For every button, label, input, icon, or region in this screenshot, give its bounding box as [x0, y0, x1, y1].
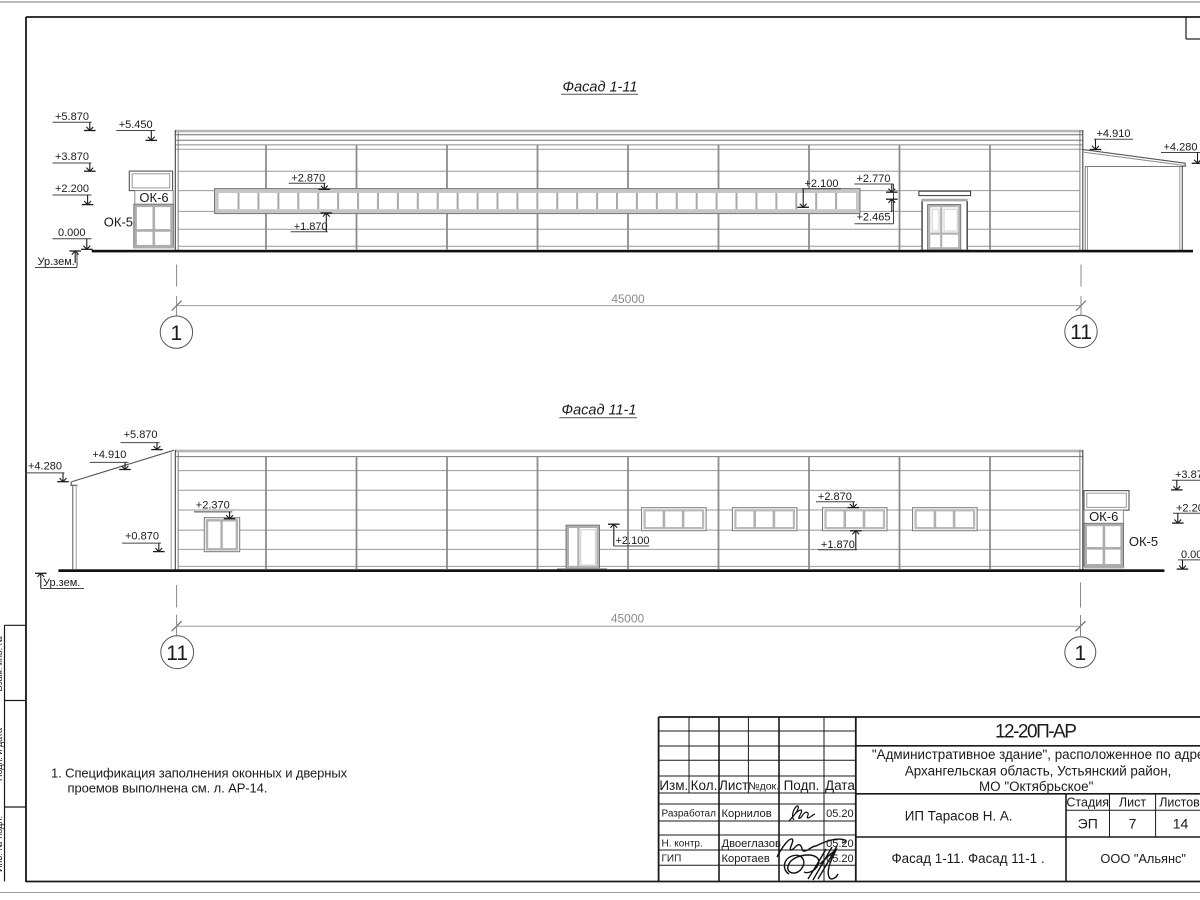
svg-text:"Административное здание", рас: "Административное здание", расположенное… [872, 747, 1200, 762]
svg-text:+3.870: +3.870 [1175, 469, 1200, 481]
svg-text:+4.280: +4.280 [28, 460, 62, 472]
svg-text:Корнилов: Корнилов [722, 808, 772, 820]
svg-text:Н. контр.: Н. контр. [662, 838, 703, 849]
svg-text:+5.450: +5.450 [119, 119, 153, 131]
svg-text:14: 14 [1173, 815, 1189, 831]
svg-text:Ур.зем.: Ур.зем. [43, 577, 80, 589]
svg-text:ОК-5: ОК-5 [104, 214, 133, 229]
svg-text:Коротаев: Коротаев [722, 853, 770, 865]
svg-text:Архангельская область, Устьянс: Архангельская область, Устьянский район, [905, 764, 1172, 779]
svg-text:0.000: 0.000 [1181, 549, 1200, 561]
svg-text:+1.870: +1.870 [294, 221, 328, 233]
svg-text:проемов выполнена см. л. АР-14: проемов выполнена см. л. АР-14. [68, 780, 268, 795]
svg-text:Взам. инв. №: Взам. инв. № [0, 635, 4, 691]
svg-text:+2.100: +2.100 [805, 178, 839, 190]
svg-text:+2.100: +2.100 [616, 535, 650, 547]
svg-text:ОК-5: ОК-5 [1129, 534, 1158, 549]
svg-text:МО "Октябрьское": МО "Октябрьское" [979, 779, 1094, 794]
svg-text:+2.465: +2.465 [857, 212, 891, 224]
svg-text:7: 7 [1129, 815, 1137, 831]
svg-text:+2.200: +2.200 [1176, 502, 1200, 514]
svg-text:+1.870: +1.870 [821, 539, 855, 551]
svg-text:Кол.: Кол. [691, 778, 718, 793]
svg-text:Фасад 11-1: Фасад 11-1 [562, 403, 637, 419]
svg-text:Изм.: Изм. [659, 778, 688, 793]
svg-text:+5.870: +5.870 [55, 111, 89, 123]
svg-text:+2.870: +2.870 [291, 172, 325, 184]
svg-text:+4.910: +4.910 [1097, 128, 1131, 140]
svg-text:+4.910: +4.910 [92, 449, 126, 461]
svg-text:Фасад 1-11. Фасад 11-1 .: Фасад 1-11. Фасад 11-1 . [891, 851, 1044, 866]
svg-text:Двоеглазов: Двоеглазов [722, 838, 782, 850]
svg-text:Подп. и дата: Подп. и дата [0, 728, 4, 781]
svg-text:11: 11 [166, 642, 188, 665]
svg-text:Лист: Лист [719, 778, 748, 793]
svg-text:+0.870: +0.870 [125, 531, 159, 543]
svg-text:05.20: 05.20 [826, 808, 854, 820]
svg-text:ООО "Альянс": ООО "Альянс" [1100, 851, 1186, 866]
svg-text:1. Спецификация заполнения око: 1. Спецификация заполнения оконных и две… [51, 765, 348, 780]
svg-text:+4.280: +4.280 [1164, 142, 1198, 154]
svg-text:45000: 45000 [611, 292, 645, 306]
svg-text:Инв. № подл.: Инв. № подл. [0, 816, 4, 872]
svg-text:Разработал: Разработал [662, 807, 717, 819]
svg-text:Ур.зем.: Ур.зем. [38, 256, 75, 268]
svg-text:+2.200: +2.200 [55, 183, 89, 195]
svg-text:0.000: 0.000 [58, 227, 86, 239]
svg-text:+2.370: +2.370 [196, 499, 230, 511]
svg-text:+5.870: +5.870 [124, 429, 158, 441]
svg-text:+2.770: +2.770 [857, 173, 891, 185]
svg-text:Дата: Дата [825, 778, 855, 793]
svg-text:ИП Тарасов Н. А.: ИП Тарасов Н. А. [905, 809, 1013, 824]
svg-text:+2.870: +2.870 [818, 491, 852, 503]
svg-text:ОК-6: ОК-6 [139, 190, 168, 205]
svg-text:Листов: Листов [1159, 795, 1200, 809]
svg-text:11: 11 [1070, 321, 1092, 344]
svg-text:ОК-6: ОК-6 [1089, 509, 1118, 524]
svg-text:1: 1 [171, 322, 183, 345]
svg-text:№док.: №док. [748, 780, 779, 792]
svg-text:Фасад 1-11: Фасад 1-11 [563, 80, 638, 96]
svg-text:+3.870: +3.870 [55, 151, 89, 163]
svg-text:1: 1 [1074, 642, 1086, 665]
svg-text:45000: 45000 [611, 612, 645, 626]
svg-text:ЭП: ЭП [1078, 815, 1098, 831]
svg-text:Стадия: Стадия [1066, 795, 1109, 809]
svg-text:Лист: Лист [1119, 795, 1146, 809]
svg-text:ГИП: ГИП [662, 853, 682, 864]
svg-text:12-20П-АР: 12-20П-АР [995, 722, 1076, 743]
svg-text:Подп.: Подп. [784, 778, 820, 793]
